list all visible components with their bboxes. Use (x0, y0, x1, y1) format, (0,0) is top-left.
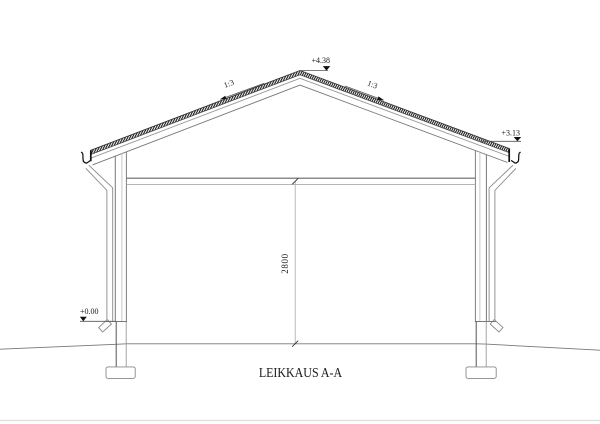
svg-text:2800: 2800 (280, 253, 290, 273)
svg-text:+4.38: +4.38 (312, 56, 331, 65)
svg-text:1:3: 1:3 (223, 78, 236, 90)
svg-text:LEIKKAUS A-A: LEIKKAUS A-A (259, 365, 343, 380)
svg-text:+3.13: +3.13 (501, 129, 520, 138)
svg-text:+0.00: +0.00 (80, 307, 99, 316)
svg-text:1:3: 1:3 (366, 79, 379, 91)
